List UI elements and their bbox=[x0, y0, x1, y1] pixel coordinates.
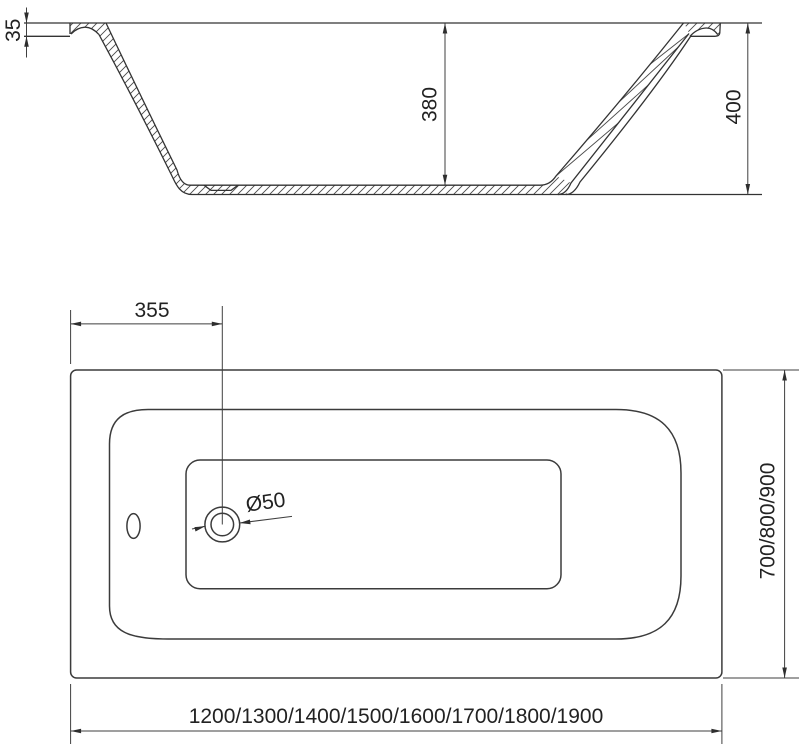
svg-text:355: 355 bbox=[134, 299, 169, 322]
svg-text:Ø50: Ø50 bbox=[244, 488, 287, 516]
svg-text:700/800/900: 700/800/900 bbox=[757, 463, 780, 580]
svg-text:380: 380 bbox=[419, 87, 442, 122]
svg-text:400: 400 bbox=[723, 89, 746, 124]
svg-text:35: 35 bbox=[2, 19, 25, 42]
svg-text:1200/1300/1400/1500/1600/1700/: 1200/1300/1400/1500/1600/1700/1800/1900 bbox=[189, 705, 604, 728]
